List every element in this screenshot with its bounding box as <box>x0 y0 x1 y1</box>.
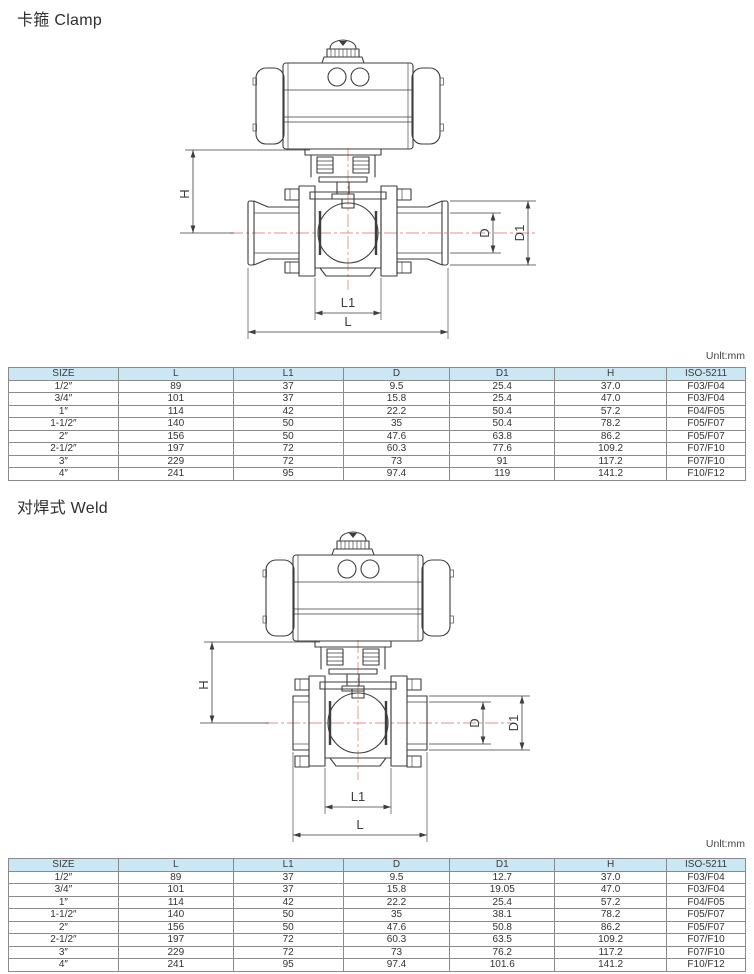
table-cell: 60.3 <box>343 443 450 456</box>
table-cell: 140 <box>118 909 233 922</box>
table-cell: 2-1/2″ <box>9 934 119 947</box>
table-row: 1-1/2″140503538.178.2F05/F07 <box>9 909 746 922</box>
air-port-icon <box>338 560 356 578</box>
table-row: 2-1/2″1977260.363.5109.2F07/F10 <box>9 934 746 947</box>
unit-note: Unlt:mm <box>706 350 745 362</box>
table-cell: 57.2 <box>555 405 667 418</box>
table-cell: 72 <box>233 455 343 468</box>
column-header: L1 <box>233 368 343 381</box>
table-cell: 22.2 <box>343 896 450 909</box>
table-cell: F05/F07 <box>667 430 746 443</box>
table-cell: 140 <box>118 418 233 431</box>
table-cell: 37.0 <box>555 380 667 393</box>
table-cell: 63.5 <box>450 934 555 947</box>
table-cell: 72 <box>233 443 343 456</box>
pneumatic-actuator <box>263 532 454 641</box>
table-row: 4″2419597.4119141.2F10/F12 <box>9 468 746 481</box>
column-header: SIZE <box>9 859 119 872</box>
dim-label-D1: D1 <box>512 225 527 242</box>
table-cell: 1/2″ <box>9 380 119 393</box>
table-cell: 101 <box>118 884 233 897</box>
table-cell: F07/F10 <box>667 443 746 456</box>
table-cell: 47.6 <box>343 430 450 443</box>
table-cell: 47.6 <box>343 921 450 934</box>
table-row: 3″229727376.2117.2F07/F10 <box>9 946 746 959</box>
column-header: SIZE <box>9 368 119 381</box>
table-row: 1″1144222.250.457.2F04/F05 <box>9 405 746 418</box>
table-cell: 78.2 <box>555 909 667 922</box>
table-cell: 1-1/2″ <box>9 418 119 431</box>
table-row: 3″229727391117.2F07/F10 <box>9 455 746 468</box>
table-cell: 101.6 <box>450 959 555 972</box>
table-cell: 37 <box>233 884 343 897</box>
table-cell: 156 <box>118 430 233 443</box>
table-cell: 241 <box>118 468 233 481</box>
table-cell: F07/F10 <box>667 946 746 959</box>
column-header: ISO-5211 <box>667 368 746 381</box>
table-cell: 25.4 <box>450 380 555 393</box>
dim-label-H: H <box>177 189 192 198</box>
table-cell: 114 <box>118 896 233 909</box>
table-cell: 19.05 <box>450 884 555 897</box>
position-indicator-dome <box>332 532 374 555</box>
dim-label-D1: D1 <box>506 715 521 732</box>
table-cell: 241 <box>118 959 233 972</box>
table-cell: 95 <box>233 468 343 481</box>
table-cell: 72 <box>233 934 343 947</box>
table-cell: 50 <box>233 430 343 443</box>
table-cell: 50.8 <box>450 921 555 934</box>
table-cell: 91 <box>450 455 555 468</box>
table-cell: F04/F05 <box>667 896 746 909</box>
table-cell: 60.3 <box>343 934 450 947</box>
table-header-row: SIZELL1DD1HISO-5211 <box>9 859 746 872</box>
table-cell: 1-1/2″ <box>9 909 119 922</box>
dimension-h: H <box>196 642 320 723</box>
air-port-icon <box>351 68 369 86</box>
table-cell: 2-1/2″ <box>9 443 119 456</box>
table-cell: 37 <box>233 871 343 884</box>
table-cell: 101 <box>118 393 233 406</box>
table-cell: 22.2 <box>343 405 450 418</box>
table-cell: 35 <box>343 418 450 431</box>
table-cell: 25.4 <box>450 896 555 909</box>
table-cell: 97.4 <box>343 959 450 972</box>
column-header: D1 <box>450 859 555 872</box>
unit-note: Unlt:mm <box>706 838 745 850</box>
table-cell: 76.2 <box>450 946 555 959</box>
table-cell: 4″ <box>9 959 119 972</box>
table-row: 1″1144222.225.457.2F04/F05 <box>9 896 746 909</box>
table-cell: 141.2 <box>555 959 667 972</box>
table-cell: 50 <box>233 921 343 934</box>
table-cell: 197 <box>118 443 233 456</box>
table-cell: 50 <box>233 909 343 922</box>
table-row: 2″1565047.663.886.2F05/F07 <box>9 430 746 443</box>
section-title-weld: 对焊式 Weld <box>17 494 108 518</box>
table-cell: F05/F07 <box>667 418 746 431</box>
dim-label-H: H <box>196 680 211 689</box>
column-header: H <box>555 368 667 381</box>
table-cell: 57.2 <box>555 896 667 909</box>
table-row: 4″2419597.4101.6141.2F10/F12 <box>9 959 746 972</box>
table-cell: 95 <box>233 959 343 972</box>
table-cell: 47.0 <box>555 884 667 897</box>
table-cell: 229 <box>118 455 233 468</box>
table-cell: 197 <box>118 934 233 947</box>
table-cell: 229 <box>118 946 233 959</box>
table-cell: 35 <box>343 909 450 922</box>
table-cell: 50.4 <box>450 405 555 418</box>
table-row: 1/2″89379.525.437.0F03/F04 <box>9 380 746 393</box>
table-cell: 42 <box>233 405 343 418</box>
table-cell: 37 <box>233 380 343 393</box>
datasheet-page: 卡箍 Clamp <box>0 0 754 974</box>
table-row: 3/4″1013715.825.447.0F03/F04 <box>9 393 746 406</box>
clamp-dimension-table: SIZELL1DD1HISO-5211 1/2″89379.525.437.0F… <box>8 367 746 481</box>
table-cell: 89 <box>118 380 233 393</box>
table-cell: 1″ <box>9 405 119 418</box>
table-cell: 3/4″ <box>9 884 119 897</box>
column-header: L1 <box>233 859 343 872</box>
table-cell: F03/F04 <box>667 393 746 406</box>
table-cell: 78.2 <box>555 418 667 431</box>
table-cell: F05/F07 <box>667 921 746 934</box>
column-header: L <box>118 859 233 872</box>
position-indicator-dome <box>322 40 364 63</box>
table-cell: 1/2″ <box>9 871 119 884</box>
table-cell: 37 <box>233 393 343 406</box>
table-cell: 72 <box>233 946 343 959</box>
column-header: D <box>343 859 450 872</box>
table-header-row: SIZELL1DD1HISO-5211 <box>9 368 746 381</box>
table-cell: 63.8 <box>450 430 555 443</box>
table-cell: F03/F04 <box>667 380 746 393</box>
centerlines <box>230 148 538 290</box>
table-cell: F03/F04 <box>667 884 746 897</box>
pneumatic-actuator <box>253 40 444 149</box>
table-cell: 1″ <box>9 896 119 909</box>
dim-label-L: L <box>344 314 351 329</box>
table-cell: 73 <box>343 455 450 468</box>
table-cell: F05/F07 <box>667 909 746 922</box>
section-title-clamp: 卡箍 Clamp <box>17 6 102 30</box>
table-cell: 15.8 <box>343 393 450 406</box>
valve-body <box>293 676 427 767</box>
table-cell: 86.2 <box>555 430 667 443</box>
mounting-bracket <box>315 641 391 691</box>
dim-label-L: L <box>356 817 363 832</box>
dim-label-L1: L1 <box>351 789 365 804</box>
table-cell: 114 <box>118 405 233 418</box>
table-cell: 9.5 <box>343 380 450 393</box>
table-cell: 37.0 <box>555 871 667 884</box>
valve-diagram-clamp: H D D1 L1 L <box>170 28 550 348</box>
table-cell: 12.7 <box>450 871 555 884</box>
table-cell: 89 <box>118 871 233 884</box>
weld-dimension-table: SIZELL1DD1HISO-5211 1/2″89379.512.737.0F… <box>8 858 746 972</box>
table-cell: 73 <box>343 946 450 959</box>
table-cell: 3″ <box>9 455 119 468</box>
table-cell: 156 <box>118 921 233 934</box>
table-cell: 38.1 <box>450 909 555 922</box>
table-cell: 141.2 <box>555 468 667 481</box>
valve-diagram-weld: H D D1 L1 L <box>170 528 550 848</box>
table-row: 2-1/2″1977260.377.6109.2F07/F10 <box>9 443 746 456</box>
column-header: ISO-5211 <box>667 859 746 872</box>
table-cell: 117.2 <box>555 946 667 959</box>
table-cell: 97.4 <box>343 468 450 481</box>
table-cell: F10/F12 <box>667 468 746 481</box>
table-cell: 119 <box>450 468 555 481</box>
air-port-icon <box>361 560 379 578</box>
table-cell: 3/4″ <box>9 393 119 406</box>
table-cell: F03/F04 <box>667 871 746 884</box>
centerlines <box>265 640 515 780</box>
table-cell: 109.2 <box>555 934 667 947</box>
dim-label-D: D <box>477 228 492 237</box>
table-cell: F07/F10 <box>667 455 746 468</box>
dim-label-L1: L1 <box>341 295 355 310</box>
table-cell: 109.2 <box>555 443 667 456</box>
table-cell: 2″ <box>9 430 119 443</box>
table-cell: 15.8 <box>343 884 450 897</box>
column-header: D <box>343 368 450 381</box>
table-cell: 117.2 <box>555 455 667 468</box>
table-row: 2″1565047.650.886.2F05/F07 <box>9 921 746 934</box>
table-row: 1-1/2″140503550.478.2F05/F07 <box>9 418 746 431</box>
table-cell: 47.0 <box>555 393 667 406</box>
column-header: D1 <box>450 368 555 381</box>
table-cell: 3″ <box>9 946 119 959</box>
table-cell: 4″ <box>9 468 119 481</box>
table-cell: 9.5 <box>343 871 450 884</box>
dim-label-D: D <box>467 718 482 727</box>
table-cell: 42 <box>233 896 343 909</box>
table-cell: 50 <box>233 418 343 431</box>
column-header: H <box>555 859 667 872</box>
table-row: 3/4″1013715.819.0547.0F03/F04 <box>9 884 746 897</box>
table-cell: 25.4 <box>450 393 555 406</box>
table-cell: 50.4 <box>450 418 555 431</box>
table-cell: 77.6 <box>450 443 555 456</box>
table-cell: 86.2 <box>555 921 667 934</box>
table-cell: F04/F05 <box>667 405 746 418</box>
table-cell: F10/F12 <box>667 959 746 972</box>
table-cell: F07/F10 <box>667 934 746 947</box>
table-row: 1/2″89379.512.737.0F03/F04 <box>9 871 746 884</box>
column-header: L <box>118 368 233 381</box>
air-port-icon <box>328 68 346 86</box>
table-cell: 2″ <box>9 921 119 934</box>
